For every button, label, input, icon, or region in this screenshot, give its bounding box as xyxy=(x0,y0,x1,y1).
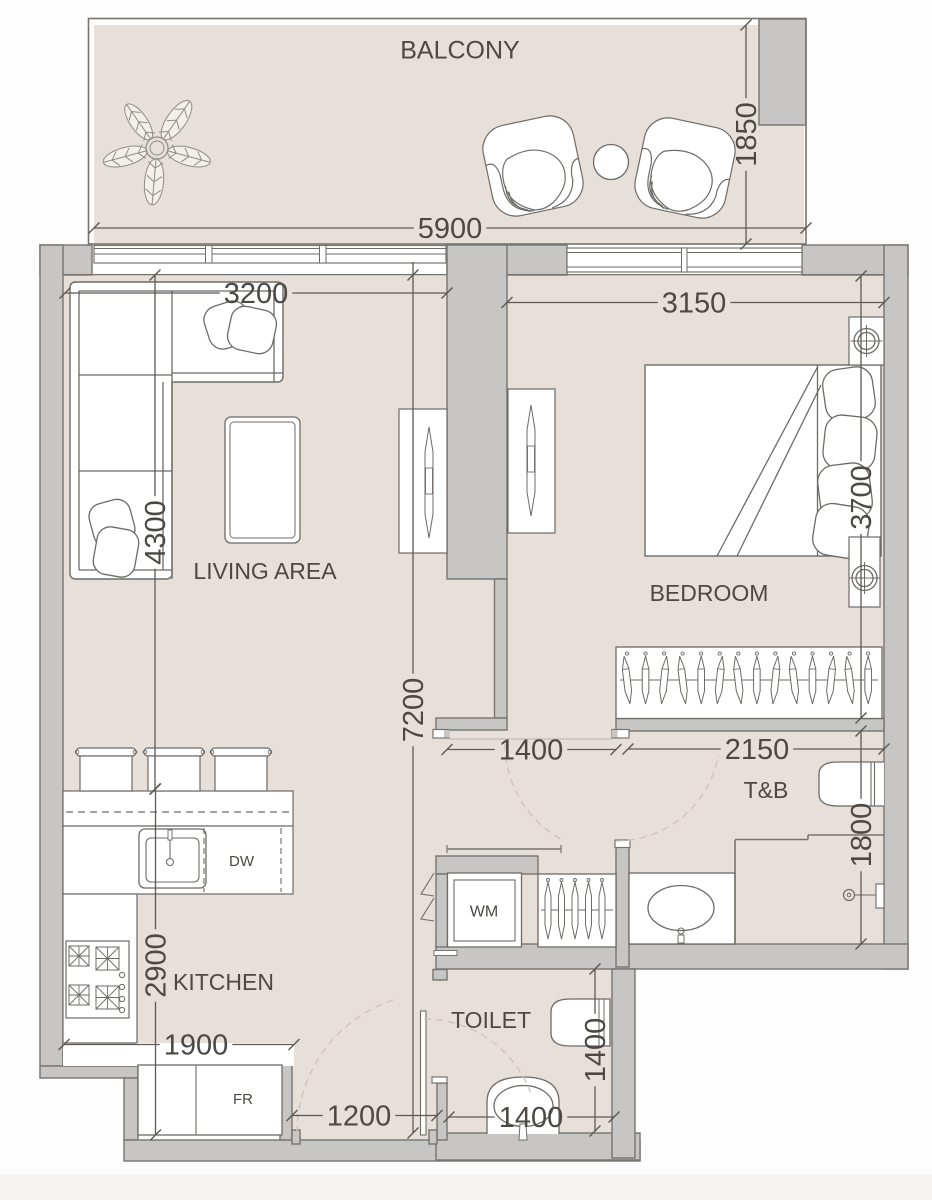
svg-text:1400: 1400 xyxy=(499,734,564,766)
svg-text:TOILET: TOILET xyxy=(451,1007,531,1033)
svg-text:4300: 4300 xyxy=(140,500,172,565)
svg-text:3200: 3200 xyxy=(224,278,289,310)
svg-text:1800: 1800 xyxy=(846,803,878,868)
svg-text:3150: 3150 xyxy=(662,287,727,319)
svg-text:BALCONY: BALCONY xyxy=(400,37,520,65)
svg-text:2900: 2900 xyxy=(140,933,172,998)
svg-text:5900: 5900 xyxy=(418,213,483,245)
svg-text:1200: 1200 xyxy=(327,1100,392,1132)
svg-text:1400: 1400 xyxy=(580,1018,612,1083)
svg-text:LIVING AREA: LIVING AREA xyxy=(193,558,337,584)
svg-text:DW: DW xyxy=(229,853,255,870)
svg-text:3700: 3700 xyxy=(846,465,878,530)
svg-text:KITCHEN: KITCHEN xyxy=(173,969,274,995)
svg-text:2150: 2150 xyxy=(725,734,790,766)
svg-text:1400: 1400 xyxy=(499,1102,564,1134)
svg-text:BEDROOM: BEDROOM xyxy=(650,580,769,606)
svg-text:T&B: T&B xyxy=(744,777,789,803)
svg-text:7200: 7200 xyxy=(398,678,430,743)
svg-text:FR: FR xyxy=(233,1091,253,1108)
svg-text:1850: 1850 xyxy=(731,102,763,167)
svg-text:WM: WM xyxy=(470,903,498,920)
svg-text:1900: 1900 xyxy=(164,1029,229,1061)
